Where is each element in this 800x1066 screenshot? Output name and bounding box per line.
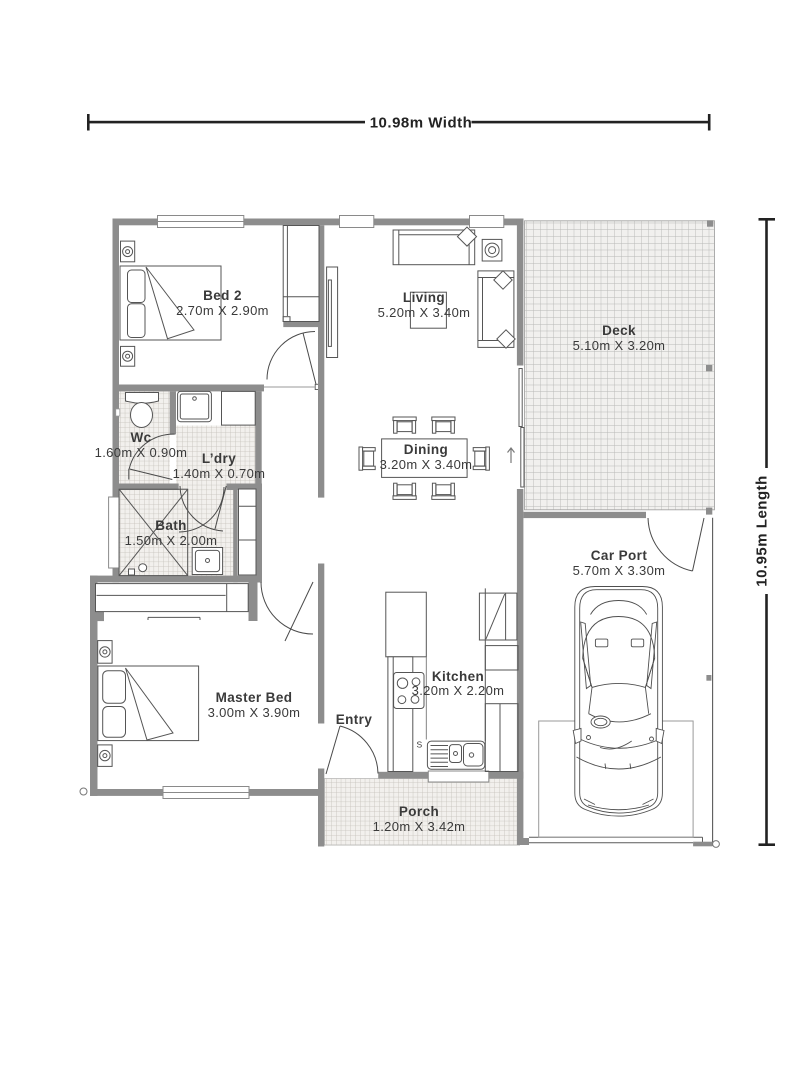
svg-text:Kitchen: Kitchen <box>432 669 484 684</box>
svg-text:Porch: Porch <box>399 804 439 819</box>
svg-text:Bath: Bath <box>155 518 187 533</box>
svg-text:Living: Living <box>403 290 445 305</box>
svg-text:10.98m Width: 10.98m Width <box>370 115 473 132</box>
svg-text:1.40m X 0.70m: 1.40m X 0.70m <box>173 466 266 481</box>
svg-text:Car Port: Car Port <box>591 548 648 563</box>
svg-text:5.10m X 3.20m: 5.10m X 3.20m <box>573 338 666 353</box>
svg-text:1.50m X 2.00m: 1.50m X 2.00m <box>125 533 218 548</box>
svg-text:3.20m X 3.40m: 3.20m X 3.40m <box>380 457 473 472</box>
svg-text:Entry: Entry <box>336 712 373 727</box>
svg-text:3.20m X 2.20m: 3.20m X 2.20m <box>412 683 505 698</box>
svg-text:1.20m X 3.42m: 1.20m X 3.42m <box>373 819 466 834</box>
svg-text:5.20m X 3.40m: 5.20m X 3.40m <box>378 305 471 320</box>
svg-text:1.60m X 0.90m: 1.60m X 0.90m <box>95 445 188 460</box>
svg-text:Deck: Deck <box>602 323 636 338</box>
svg-text:S: S <box>417 740 423 750</box>
svg-text:5.70m X 3.30m: 5.70m X 3.30m <box>573 563 666 578</box>
svg-text:Bed 2: Bed 2 <box>203 288 242 303</box>
svg-text:2.70m X 2.90m: 2.70m X 2.90m <box>176 303 269 318</box>
svg-text:L’dry: L’dry <box>202 451 236 466</box>
svg-text:Master Bed: Master Bed <box>216 690 293 705</box>
svg-text:Dining: Dining <box>404 442 448 457</box>
svg-text:Wc: Wc <box>130 430 151 445</box>
svg-text:10.95m Length: 10.95m Length <box>754 475 771 587</box>
svg-text:3.00m X 3.90m: 3.00m X 3.90m <box>208 705 301 720</box>
